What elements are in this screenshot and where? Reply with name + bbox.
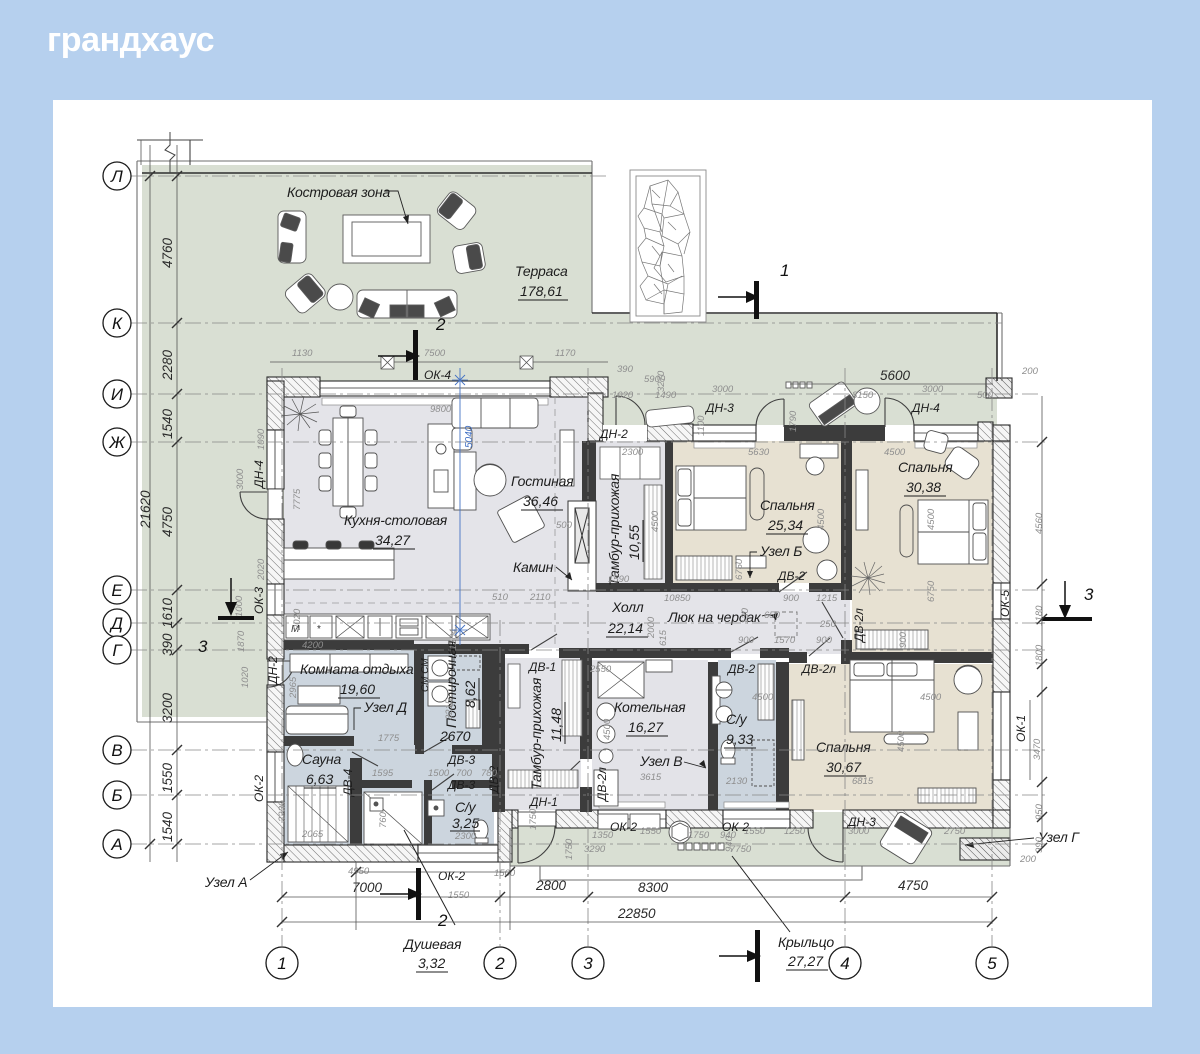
svg-text:3470: 3470 (1032, 738, 1043, 760)
svg-text:ДН-3: ДН-3 (704, 401, 734, 415)
svg-text:Спальня: Спальня (898, 459, 953, 475)
svg-text:1790: 1790 (788, 410, 799, 432)
svg-text:2800: 2800 (535, 878, 567, 893)
svg-text:ОК-3: ОК-3 (252, 587, 266, 614)
svg-text:8300: 8300 (638, 880, 669, 895)
svg-text:Кухня-столовая: Кухня-столовая (344, 512, 448, 528)
svg-text:ДН-2: ДН-2 (266, 656, 280, 686)
svg-text:3000: 3000 (235, 468, 246, 490)
svg-text:ДН-2: ДН-2 (598, 427, 628, 441)
svg-text:4200: 4200 (302, 640, 324, 651)
svg-text:500: 500 (556, 520, 573, 531)
svg-text:1130: 1130 (292, 348, 313, 359)
svg-text:ОК-2: ОК-2 (252, 775, 266, 802)
svg-text:200: 200 (1021, 366, 1039, 377)
svg-text:1750: 1750 (528, 808, 539, 830)
svg-text:2550: 2550 (589, 664, 612, 675)
svg-text:А: А (110, 835, 122, 854)
svg-text:3000: 3000 (922, 384, 944, 395)
svg-text:8,62: 8,62 (462, 681, 478, 708)
svg-text:10850: 10850 (664, 593, 691, 604)
svg-text:3000: 3000 (848, 826, 870, 837)
svg-text:1550: 1550 (448, 890, 470, 901)
svg-text:510: 510 (492, 592, 509, 603)
svg-text:6,63: 6,63 (306, 771, 333, 787)
svg-text:1540: 1540 (160, 811, 175, 842)
svg-text:19,60: 19,60 (340, 681, 375, 697)
svg-text:Л: Л (110, 167, 123, 186)
svg-text:1: 1 (780, 261, 789, 280)
svg-text:Гостиная: Гостиная (511, 473, 574, 489)
svg-text:4760: 4760 (160, 237, 175, 268)
svg-text:3: 3 (583, 954, 593, 973)
svg-text:2020: 2020 (256, 558, 267, 581)
svg-text:3: 3 (198, 637, 208, 656)
svg-text:5: 5 (987, 954, 997, 973)
svg-text:1550: 1550 (640, 826, 662, 837)
svg-text:500: 500 (977, 390, 994, 401)
svg-text:грандхаус: грандхаус (47, 21, 214, 59)
svg-text:Д: Д (109, 614, 123, 633)
svg-text:4500: 4500 (920, 692, 942, 703)
svg-text:1250: 1250 (784, 826, 806, 837)
svg-text:4500: 4500 (752, 692, 774, 703)
svg-text:950: 950 (1034, 803, 1045, 820)
svg-text:11,48: 11,48 (548, 708, 564, 742)
svg-text:4750: 4750 (160, 506, 175, 537)
svg-text:ДВ-2: ДВ-2 (776, 569, 805, 583)
svg-text:1215: 1215 (816, 593, 838, 604)
svg-text:1595: 1595 (372, 768, 394, 779)
svg-text:4500: 4500 (602, 718, 613, 740)
svg-text:Котельная: Котельная (614, 699, 686, 715)
svg-text:7000: 7000 (352, 880, 383, 895)
svg-text:1500: 1500 (428, 768, 450, 779)
svg-text:2: 2 (494, 954, 505, 973)
svg-text:Терраса: Терраса (515, 263, 568, 279)
svg-text:ОК-1: ОК-1 (1014, 715, 1028, 742)
svg-text:9,33: 9,33 (726, 731, 753, 747)
svg-text:2280: 2280 (160, 349, 175, 381)
svg-text:2000: 2000 (646, 616, 657, 639)
svg-text:ДВ-2л: ДВ-2л (595, 767, 609, 803)
svg-text:Узел Д: Узел Д (363, 699, 407, 715)
svg-text:250: 250 (819, 619, 837, 630)
svg-text:4: 4 (840, 954, 849, 973)
svg-text:130: 130 (740, 607, 751, 624)
svg-text:900: 900 (898, 631, 909, 648)
svg-text:2110: 2110 (529, 592, 551, 603)
svg-text:10,55: 10,55 (626, 525, 642, 560)
svg-text:Узел В: Узел В (639, 753, 682, 769)
svg-text:ДВ-4: ДВ-4 (341, 769, 355, 798)
svg-text:Е: Е (111, 581, 123, 600)
svg-text:615: 615 (658, 629, 669, 646)
svg-text:4500: 4500 (884, 447, 906, 458)
svg-text:ДН-4: ДН-4 (910, 401, 940, 415)
svg-text:4500: 4500 (650, 510, 661, 532)
svg-text:900: 900 (783, 593, 800, 604)
svg-text:3: 3 (1084, 585, 1094, 604)
svg-text:2065: 2065 (301, 829, 324, 840)
svg-text:6750: 6750 (926, 580, 937, 602)
svg-text:Комната отдыха: Комната отдыха (300, 661, 414, 677)
svg-text:21620: 21620 (138, 490, 153, 529)
svg-text:1170: 1170 (555, 348, 576, 359)
svg-text:Сауна: Сауна (302, 751, 341, 767)
svg-text:3200: 3200 (160, 692, 175, 723)
svg-text:1550: 1550 (160, 762, 175, 793)
svg-text:ДВ-1: ДВ-1 (527, 660, 556, 674)
svg-text:3615: 3615 (640, 772, 662, 783)
svg-text:ОК-2: ОК-2 (610, 820, 637, 834)
svg-text:1750: 1750 (688, 830, 710, 841)
svg-text:С/у: С/у (726, 711, 748, 727)
svg-text:5600: 5600 (880, 368, 911, 383)
svg-text:7775: 7775 (292, 488, 303, 510)
svg-text:Б: Б (111, 786, 122, 805)
svg-text:4500: 4500 (926, 508, 937, 530)
svg-text:22,14: 22,14 (607, 620, 643, 636)
svg-text:ОК-5: ОК-5 (998, 590, 1012, 617)
svg-text:9800: 9800 (430, 404, 452, 415)
svg-text:4950: 4950 (348, 866, 370, 877)
svg-text:36,46: 36,46 (523, 493, 558, 509)
svg-text:2300: 2300 (621, 447, 644, 458)
svg-text:ДВ-3: ДВ-3 (446, 753, 475, 767)
svg-text:Костровая зона: Костровая зона (287, 184, 391, 200)
svg-text:2: 2 (435, 315, 446, 334)
svg-text:7500: 7500 (424, 348, 446, 359)
svg-text:2: 2 (437, 911, 448, 930)
svg-text:30,67: 30,67 (826, 759, 862, 775)
svg-text:Спальня: Спальня (760, 497, 815, 513)
svg-text:ОК-4: ОК-4 (424, 368, 451, 382)
svg-text:3270: 3270 (656, 370, 667, 392)
svg-text:760: 760 (378, 811, 389, 828)
svg-text:1750: 1750 (564, 838, 575, 860)
svg-text:27,27: 27,27 (787, 953, 824, 969)
svg-text:3000: 3000 (712, 384, 734, 395)
svg-text:700: 700 (456, 768, 473, 779)
svg-text:6750: 6750 (734, 558, 745, 580)
svg-text:34,27: 34,27 (375, 532, 411, 548)
svg-text:1590: 1590 (608, 574, 630, 585)
svg-text:2020: 2020 (292, 608, 303, 631)
svg-text:2965: 2965 (288, 676, 299, 699)
svg-text:3290: 3290 (584, 844, 606, 855)
svg-text:ДВ-2л: ДВ-2л (800, 662, 836, 676)
svg-text:178,61: 178,61 (520, 283, 563, 299)
svg-text:Спальня: Спальня (816, 739, 871, 755)
svg-text:900: 900 (816, 635, 833, 646)
svg-text:3215: 3215 (444, 698, 455, 720)
svg-text:*: * (317, 624, 321, 635)
svg-text:200: 200 (1019, 854, 1037, 865)
svg-text:1020: 1020 (240, 666, 251, 688)
svg-text:3150: 3150 (852, 390, 874, 401)
svg-text:К: К (112, 314, 123, 333)
svg-text:4500: 4500 (896, 730, 907, 752)
svg-text:2670: 2670 (439, 728, 471, 744)
svg-text:30,38: 30,38 (906, 479, 941, 495)
svg-text:Ж: Ж (108, 433, 126, 452)
svg-text:3230: 3230 (277, 800, 288, 822)
svg-text:1: 1 (277, 954, 286, 973)
svg-text:4750: 4750 (898, 878, 929, 893)
svg-text:1350: 1350 (592, 830, 614, 841)
svg-text:1540: 1540 (160, 408, 175, 439)
svg-text:16,27: 16,27 (628, 719, 664, 735)
svg-text:1550: 1550 (744, 826, 766, 837)
svg-text:1000: 1000 (234, 595, 245, 617)
svg-text:ОК-2: ОК-2 (438, 869, 465, 883)
svg-text:1775: 1775 (378, 733, 400, 744)
svg-text:1020: 1020 (612, 390, 634, 401)
svg-text:ДН-4: ДН-4 (252, 460, 266, 490)
svg-text:Крыльцо: Крыльцо (778, 934, 834, 950)
svg-text:1100: 1100 (696, 415, 707, 436)
svg-text:3,32: 3,32 (418, 955, 445, 971)
svg-text:25,34: 25,34 (767, 517, 803, 533)
svg-text:390: 390 (160, 633, 175, 656)
svg-text:3,25: 3,25 (452, 815, 479, 831)
svg-text:2130: 2130 (725, 776, 748, 787)
svg-text:5630: 5630 (748, 447, 770, 458)
svg-text:ДВ-2л: ДВ-2л (852, 608, 866, 644)
svg-text:С/у: С/у (455, 799, 477, 815)
svg-text:650: 650 (764, 610, 781, 621)
svg-text:4560: 4560 (1034, 512, 1045, 534)
svg-text:Узел Б: Узел Б (759, 543, 802, 559)
svg-text:1570: 1570 (774, 635, 796, 646)
svg-text:1610: 1610 (160, 597, 175, 628)
svg-text:ДВ-3: ДВ-3 (446, 778, 475, 792)
svg-text:В: В (111, 741, 122, 760)
svg-text:И: И (111, 385, 124, 404)
svg-text:Тамбур-прихожая: Тамбур-прихожая (606, 473, 622, 586)
svg-text:780: 780 (481, 768, 498, 779)
svg-text:390: 390 (617, 364, 634, 375)
svg-text:Узел А: Узел А (204, 874, 247, 890)
svg-text:2300: 2300 (454, 831, 477, 842)
svg-text:1090: 1090 (256, 428, 267, 450)
svg-text:2750: 2750 (943, 826, 966, 837)
svg-text:22850: 22850 (617, 906, 656, 921)
svg-text:ДВ-2: ДВ-2 (726, 662, 755, 676)
svg-text:900: 900 (738, 635, 755, 646)
svg-text:1870: 1870 (236, 630, 247, 652)
svg-text:Тамбур-прихожая: Тамбур-прихожая (528, 677, 544, 790)
svg-text:ДН-1: ДН-1 (528, 795, 558, 809)
svg-text:Холл: Холл (611, 599, 644, 615)
svg-text:Душевая: Душевая (402, 936, 462, 952)
svg-text:4500: 4500 (816, 508, 827, 530)
svg-text:Камин: Камин (513, 559, 554, 575)
svg-text:6815: 6815 (852, 776, 874, 787)
svg-text:5040: 5040 (464, 425, 475, 448)
